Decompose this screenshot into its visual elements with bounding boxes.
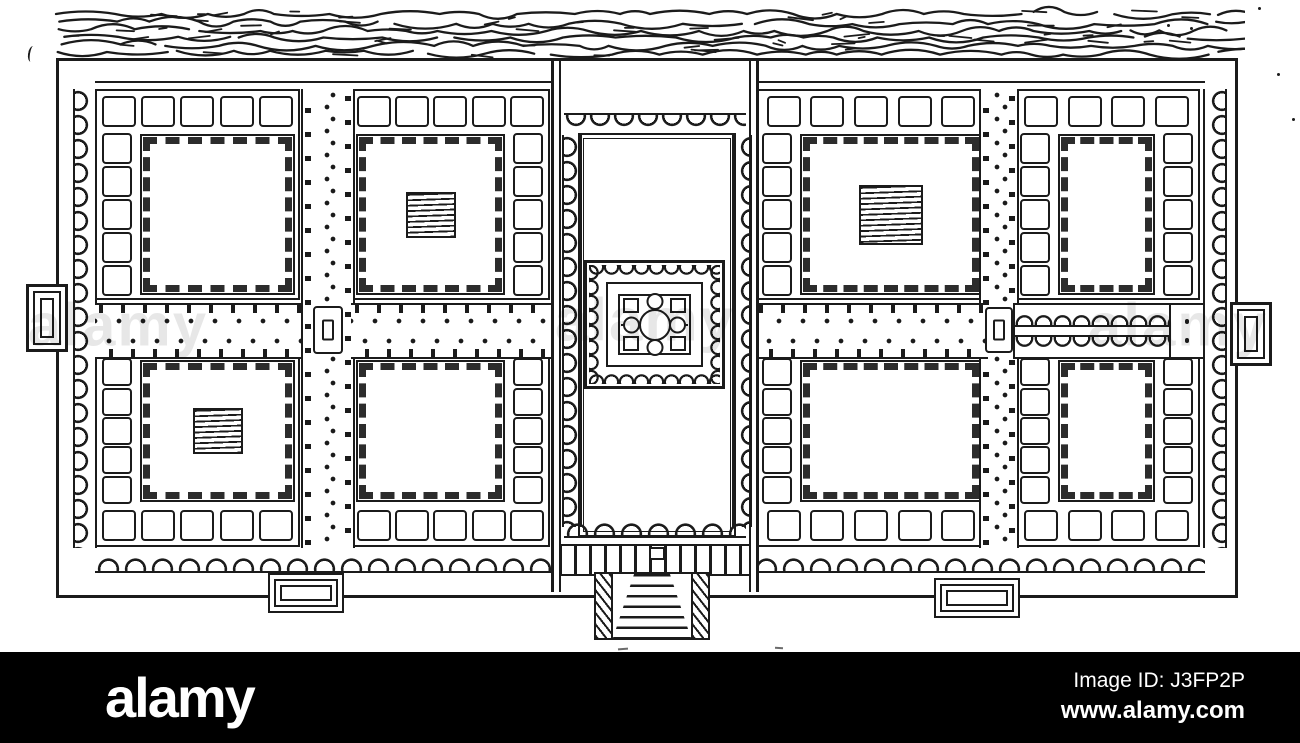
border-square [1024, 510, 1058, 541]
mid-path-inner-left [351, 303, 551, 359]
river-dash [241, 25, 261, 26]
ink-speck [775, 647, 783, 649]
river-dash [213, 13, 227, 16]
channel-cascade [1015, 305, 1169, 357]
plot-border-squares-left [757, 357, 797, 505]
image-id-text: Image ID: J3FP2P [1061, 667, 1245, 695]
border-square [102, 232, 132, 263]
river-wave-strand [56, 7, 1245, 19]
border-square [510, 510, 544, 541]
river-dash [1045, 34, 1051, 35]
water-tank [193, 408, 243, 454]
river-dash [1025, 40, 1047, 43]
garden-door-right [985, 307, 1013, 353]
border-square [1163, 358, 1193, 386]
fountain-corner-plot [670, 336, 686, 351]
planting-bed [140, 134, 295, 295]
left-wall-scallop-band [73, 89, 97, 548]
river-dash [333, 54, 358, 55]
river-dash [390, 29, 411, 30]
border-square [433, 510, 467, 541]
river-dash [685, 46, 700, 48]
planting-bed [800, 360, 982, 502]
river-dash [690, 28, 708, 29]
border-square [1020, 199, 1050, 230]
site-url-text: www.alamy.com [1061, 695, 1245, 727]
border-square [510, 96, 544, 127]
border-square [102, 358, 132, 386]
border-square [513, 417, 543, 445]
ink-speck [1258, 7, 1261, 10]
fountain-lobe-east [669, 316, 686, 333]
border-square [1020, 417, 1050, 445]
alamy-watermark-bar: alamy Image ID: J3FP2P www.alamy.com [0, 652, 1300, 743]
border-square [357, 510, 391, 541]
fountain-corner-plot [670, 298, 686, 313]
border-square [1111, 510, 1145, 541]
river-dash [773, 43, 782, 45]
border-square [513, 265, 543, 296]
border-square [1163, 265, 1193, 296]
border-square [762, 199, 792, 230]
border-square [1068, 96, 1102, 127]
planting-bed [1058, 134, 1155, 295]
border-square [1020, 446, 1050, 474]
border-square [1020, 388, 1050, 416]
river-wave-strand [62, 40, 1245, 50]
border-square [854, 510, 888, 541]
channel-end-basin [1169, 305, 1203, 357]
border-square [102, 166, 132, 197]
border-square [1163, 388, 1193, 416]
border-square [767, 96, 801, 127]
river-dash [134, 37, 149, 39]
border-square [102, 133, 132, 164]
river-dash [339, 17, 352, 18]
border-square [1163, 476, 1193, 504]
river-dash [844, 34, 869, 37]
border-square [141, 510, 175, 541]
river-dash [1022, 11, 1046, 12]
stock-image-canvas: alamy alamy alamy alamy Image ID: J3FP2P… [0, 0, 1300, 743]
plot-top-right-inner [755, 89, 987, 300]
plot-top-left-inner [351, 89, 550, 300]
bottom-scallop-band-left [95, 548, 551, 573]
border-square [1020, 166, 1050, 197]
water-tank [859, 185, 923, 245]
plot-border-squares-left [97, 357, 137, 505]
border-square [1068, 510, 1102, 541]
river-dash [1182, 17, 1198, 18]
pavilion-fountain-circle [639, 309, 671, 341]
border-square [472, 96, 506, 127]
river-dash [859, 37, 865, 38]
fountain-corner-plot [623, 298, 639, 313]
border-square [1163, 417, 1193, 445]
border-square [1020, 232, 1050, 263]
planting-bed [140, 360, 295, 502]
alamy-logo: alamy [105, 670, 254, 726]
border-square [1163, 133, 1193, 164]
plot-border-squares-top [1015, 91, 1198, 131]
bed-fringe [1061, 137, 1152, 292]
river-dash [846, 48, 856, 49]
plot-top-left [95, 89, 300, 300]
plot-border-squares-right [508, 131, 548, 298]
bed-fringe [143, 137, 292, 292]
river-dash [832, 43, 855, 44]
bed-fringe [803, 363, 979, 499]
border-square [854, 96, 888, 127]
river-dash [151, 15, 158, 16]
mid-path-outer-left [95, 303, 301, 359]
stair-jamb-right [691, 574, 708, 638]
entrance-stairs [594, 572, 710, 640]
planting-bed [800, 134, 982, 295]
river-dash [1144, 41, 1153, 42]
channel-center-rill [1015, 325, 1169, 337]
river-dash [715, 38, 739, 40]
ink-speck [1190, 27, 1193, 30]
plot-border-squares-bottom [97, 505, 298, 545]
border-square [762, 166, 792, 197]
plot-border-squares-top [757, 91, 985, 131]
water-tank [406, 192, 456, 238]
central-water-court [551, 61, 759, 592]
planting-bed [1058, 360, 1155, 502]
stair-steps [613, 574, 691, 638]
border-square [898, 510, 932, 541]
watermark-text-block: Image ID: J3FP2P www.alamy.com [1061, 667, 1245, 728]
plot-border-squares-bottom [1015, 505, 1198, 545]
ink-speck [27, 45, 37, 62]
plot-border-squares-left [97, 131, 137, 298]
border-square [1020, 476, 1050, 504]
plot-bottom-right-inner [755, 355, 987, 547]
plot-border-squares-left [1015, 131, 1055, 298]
channel-scallops-bottom [1015, 337, 1169, 357]
border-square [762, 476, 792, 504]
fountain-corner-plot [623, 336, 639, 351]
border-square [513, 166, 543, 197]
river-dash [120, 45, 133, 46]
border-square [513, 232, 543, 263]
planting-bed [356, 360, 505, 502]
garden-plan [56, 58, 1238, 598]
border-square [762, 388, 792, 416]
river-dash [614, 30, 635, 32]
river-dash [189, 36, 210, 39]
bed-fringe [1061, 363, 1152, 499]
stair-jamb-left [596, 574, 613, 638]
border-square [513, 476, 543, 504]
border-square [1163, 446, 1193, 474]
plot-top-right [1013, 89, 1200, 300]
border-square [1163, 232, 1193, 263]
border-square [941, 510, 975, 541]
fountain-lobe-south [646, 339, 663, 356]
border-square [1111, 96, 1145, 127]
river-dash [974, 40, 994, 42]
border-square [395, 510, 429, 541]
water-channel [1013, 303, 1205, 359]
bottom-gate-left [268, 573, 344, 613]
river-dash [517, 29, 539, 31]
border-square [433, 96, 467, 127]
river-dash [117, 30, 134, 31]
side-gate-left [26, 284, 68, 352]
river-dash [340, 21, 360, 23]
ink-speck [1167, 24, 1170, 27]
bed-fringe [359, 363, 502, 499]
plot-border-squares-right [1158, 357, 1198, 505]
plot-border-squares-top [353, 91, 548, 131]
river-dash [869, 22, 884, 23]
border-square [513, 199, 543, 230]
border-square [1155, 510, 1189, 541]
planting-bed [356, 134, 505, 295]
border-square [1024, 96, 1058, 127]
plot-border-squares-right [1158, 131, 1198, 298]
river-dash [574, 22, 583, 23]
plot-border-squares-bottom [353, 505, 548, 545]
border-square [180, 96, 214, 127]
border-square [102, 265, 132, 296]
ink-speck [1292, 118, 1295, 121]
river-dash [1088, 41, 1108, 43]
border-square [762, 446, 792, 474]
border-square [141, 96, 175, 127]
border-square [513, 388, 543, 416]
ink-speck [1277, 73, 1280, 76]
plot-border-squares-right [508, 357, 548, 505]
side-gate-right [1230, 302, 1272, 366]
river-dash [840, 16, 846, 19]
plot-bottom-left-inner [351, 355, 550, 547]
fountain-lobe-north [646, 293, 663, 310]
border-square [767, 510, 801, 541]
border-square [513, 358, 543, 386]
border-square [102, 388, 132, 416]
border-square [102, 417, 132, 445]
court-bottom-scallops [564, 513, 746, 538]
border-square [180, 510, 214, 541]
river-dash [159, 28, 167, 29]
border-square [810, 510, 844, 541]
border-square [102, 510, 136, 541]
river-dash [1084, 35, 1093, 36]
garden-door-left [313, 306, 343, 354]
border-square [259, 510, 293, 541]
ink-speck [618, 648, 628, 651]
border-square [357, 96, 391, 127]
plot-bottom-left [95, 355, 300, 547]
border-square [762, 358, 792, 386]
border-square [762, 417, 792, 445]
border-square [1020, 358, 1050, 386]
river-wave-strand [59, 17, 1245, 29]
river-dash [195, 20, 208, 21]
border-square [220, 510, 254, 541]
river-dash [156, 15, 177, 16]
river-dash [1132, 11, 1157, 12]
fountain-lobe-west [623, 316, 640, 333]
right-wall-scallop-band [1203, 89, 1227, 548]
mid-path-inner-right [755, 303, 988, 359]
bottom-scallop-band-right [753, 548, 1205, 573]
border-square [1155, 96, 1189, 127]
border-square [513, 446, 543, 474]
plot-border-squares-left [1015, 357, 1055, 505]
border-square [102, 476, 132, 504]
river-dash [823, 13, 832, 15]
border-square [220, 96, 254, 127]
river-dash [949, 36, 971, 38]
border-square [102, 199, 132, 230]
border-square [898, 96, 932, 127]
border-square [762, 133, 792, 164]
border-square [810, 96, 844, 127]
border-square [941, 96, 975, 127]
border-square [1163, 199, 1193, 230]
plot-border-squares-left [757, 131, 797, 298]
border-square [395, 96, 429, 127]
river-dash [204, 52, 224, 53]
border-square [513, 133, 543, 164]
plot-border-squares-top [97, 91, 298, 131]
plot-border-squares-bottom [757, 505, 985, 545]
border-square [102, 96, 136, 127]
border-square [472, 510, 506, 541]
river-dash [1170, 41, 1191, 43]
border-square [1020, 133, 1050, 164]
river-dash [779, 40, 786, 43]
border-square [102, 446, 132, 474]
river-band [50, 4, 1245, 62]
border-square [1020, 265, 1050, 296]
border-square [259, 96, 293, 127]
border-square [762, 232, 792, 263]
bottom-gate-right [934, 578, 1020, 618]
border-square [762, 265, 792, 296]
channel-scallops-top [1015, 305, 1169, 325]
central-pavilion [584, 260, 725, 389]
border-square [1163, 166, 1193, 197]
plot-bottom-right [1013, 355, 1200, 547]
